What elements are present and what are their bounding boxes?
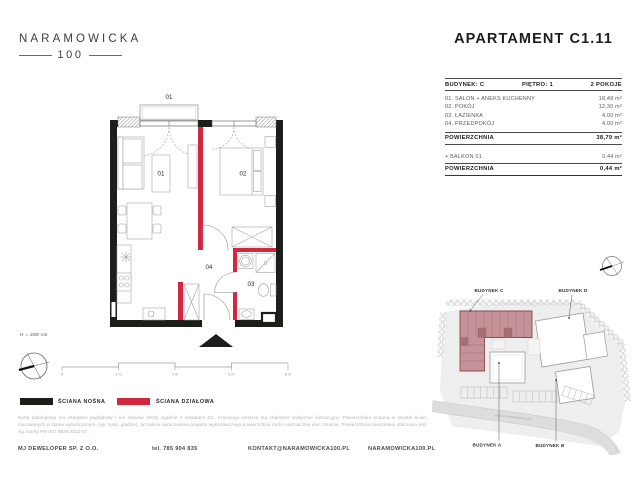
building-c-label: BUDYNEK C [474,288,504,293]
page-title: APARTAMENT C1.11 [445,31,622,47]
site-plan: ULICA NARAMOWICKA [432,240,637,455]
balcony-total-label: POWIERZCHNIA [445,166,494,172]
footer-company: MJ DEWELOPER SP. Z O.O. [18,446,98,452]
footer-phone: tel. 785 904 835 [152,446,198,452]
legend-load-bearing: ŚCIANA NOŚNA [20,398,105,405]
furniture [117,137,276,321]
room-area: 12,30 m² [599,103,622,111]
balcony-total-row: POWIERZCHNIA 0,44 m² [445,164,622,176]
room-label: 02. POKÓJ [445,103,475,111]
table-row: 01. SALON + ANEKS KUCHENNY 18,49 m² [445,95,622,103]
brand-number: 100 [57,49,83,61]
table-row: 02. POKÓJ 12,30 m² [445,103,622,111]
wall-niche-left [112,302,116,317]
balcony: 01 [140,94,198,120]
balcony-tag: 01 [166,94,173,101]
spec-building: BUDYNEK: C [445,82,484,88]
site-compass-icon [600,257,624,276]
brand-line-left [19,55,52,56]
balcony-total-value: 0,44 m² [600,166,622,172]
compass-icon [18,348,52,384]
room-area: 4,00 m² [602,120,622,128]
balcony-label: + BALKON 01 [445,154,482,160]
building-a-label: BUDYNEK A [473,443,502,448]
scale-tick-4m: 4 m [172,373,178,377]
legend-label-load-bearing: ŚCIANA NOŚNA [58,399,105,405]
courtyard-feature [492,340,505,349]
disclaimer-text: Karta katalogowa ma charakter poglądowy … [18,415,426,435]
brand-line-right [89,55,122,56]
partition-swatch [117,398,150,405]
ceiling-height-note: H = 260 cm [20,333,48,338]
entrance-arrow [199,334,233,347]
scale-bar: 0 2 m 4 m 6 m 8 m [55,355,300,381]
room-label-hall: 04 [206,264,213,271]
spec-header-row: BUDYNEK: C PIĘTRO: 1 2 POKOJE [445,78,622,91]
brand-name: NARAMOWICKA [19,33,131,45]
brand-number-row: 100 [19,49,122,61]
building-b-label: BUDYNEK B [535,443,565,448]
wall-shaft-bottom-right [262,313,276,323]
building-b-shape [556,367,595,404]
table-row: 04. PRZEDPOKÓJ 4,00 m² [445,120,622,128]
spec-floor: PIĘTRO: 1 [522,82,553,88]
total-label: POWIERZCHNIA [445,135,494,141]
balcony-value: 0,44 m² [602,154,622,160]
total-value: 38,79 m² [596,135,622,141]
room-area: 18,49 m² [599,95,622,103]
room-label: 03. ŁAZIENKA [445,112,483,120]
room-label-bedroom: 02 [240,171,247,178]
building-d-label: BUDYNEK D [558,288,588,293]
building-a-shape [490,352,525,383]
scale-labels: 0 2 m 4 m 6 m 8 m [61,373,291,377]
room-label-living: 01 [158,171,165,178]
scale-tick-6m: 6 m [228,373,234,377]
load-bearing-swatch [20,398,53,405]
catalog-card: NARAMOWICKA 100 APARTAMENT C1.11 BUDYNEK… [0,0,640,480]
building-d-shape [536,313,590,367]
table-row: 03. ŁAZIENKA 4,00 m² [445,112,622,120]
building-d-wing [584,332,608,360]
balcony-row: + BALKON 01 0,44 m² [445,154,622,164]
spec-rooms: 2 POKOJE [591,82,622,88]
room-label-bath: 03 [248,281,255,288]
door-swings [203,225,235,320]
footer-email: KONTAKT@NARAMOWICKA100.PL [248,446,350,452]
floor-plan: 01 [85,85,315,355]
spec-room-rows: 01. SALON + ANEKS KUCHENNY 18,49 m² 02. … [445,95,622,129]
legend-label-partition: ŚCIANA DZIAŁOWA [156,399,214,405]
courtyard-feature [528,339,540,355]
room-label: 01. SALON + ANEKS KUCHENNY [445,95,535,103]
scale-tick-0: 0 [61,373,63,377]
legend-partition: ŚCIANA DZIAŁOWA [117,398,214,405]
room-area: 4,00 m² [602,112,622,120]
spec-table: BUDYNEK: C PIĘTRO: 1 2 POKOJE 01. SALON … [445,78,622,176]
room-label: 04. PRZEDPOKÓJ [445,120,494,128]
brand-logo: NARAMOWICKA 100 [19,33,131,61]
scale-tick-2m: 2 m [115,373,121,377]
total-area-row: POWIERZCHNIA 38,79 m² [445,132,622,145]
scale-tick-8m: 8 m [285,373,291,377]
footer-website: NARAMOWICKA100.PL [368,446,435,452]
